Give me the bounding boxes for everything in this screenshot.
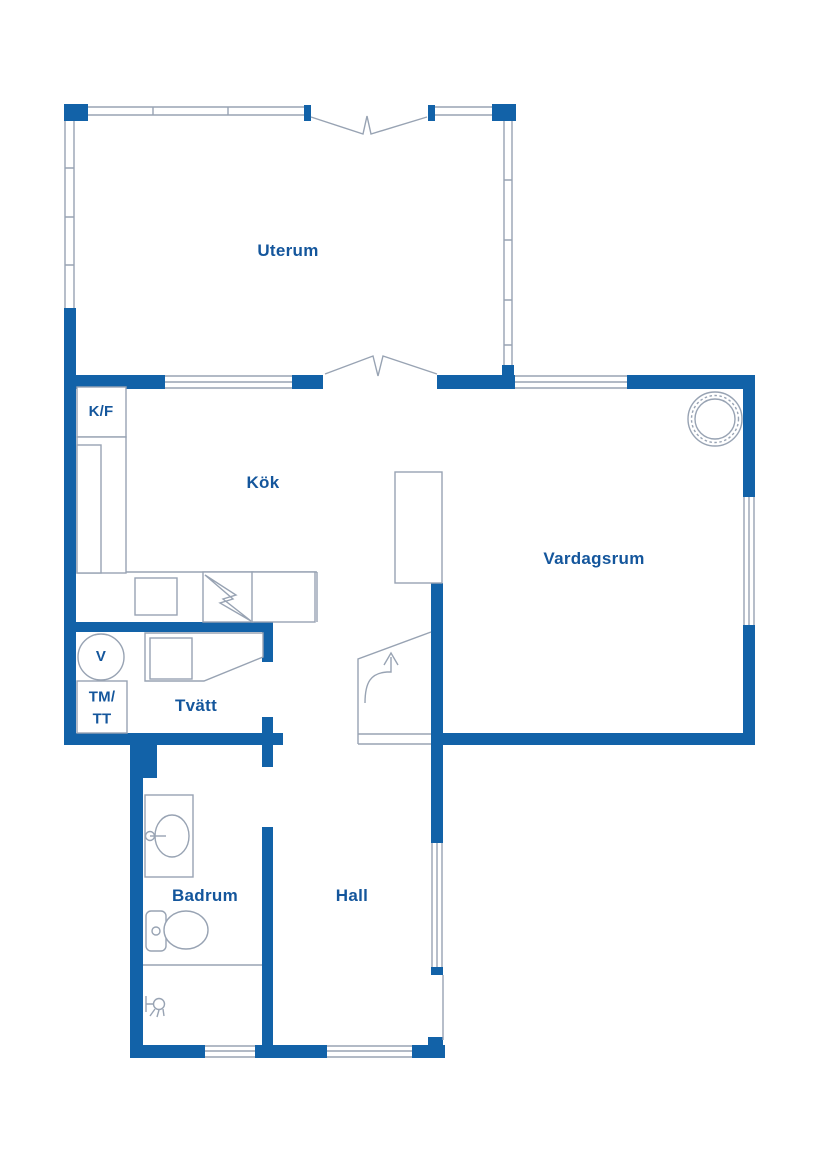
uterum-glass-walls (64, 104, 516, 376)
fireplace-icon (688, 392, 742, 446)
exterior-wall-right (743, 375, 755, 497)
closet-box (395, 472, 442, 583)
exterior-wall-vardagsrum-bottom (431, 733, 755, 745)
interior-wall-tvatt-bottom (64, 733, 283, 745)
bathroom-fixtures (143, 795, 262, 1017)
washer-dryer-line1: TM/ (89, 686, 115, 708)
interior-wall-badrum-hall (262, 827, 273, 1047)
uterum-window-right (504, 121, 512, 365)
uterum-door-jamb (304, 105, 311, 121)
kitchen-fixtures (77, 387, 442, 622)
exterior-wall-bottom (412, 1045, 445, 1058)
room-label-vardagsrum: Vardagsrum (543, 549, 644, 569)
kitchen-counter-left-inner (77, 445, 101, 573)
exterior-wall-left (64, 375, 76, 745)
uterum-corner-post (492, 104, 516, 121)
uterum-window-left (65, 121, 74, 308)
room-label-kok: Kök (246, 473, 279, 493)
interior-wall-stub (143, 745, 157, 778)
uterum-wall-segment (502, 365, 514, 376)
washer-dryer-line2: TT (89, 708, 115, 730)
fixture-label-fridge-freezer: K/F (89, 401, 114, 423)
stair-arrow (365, 657, 391, 703)
room-label-tvatt: Tvätt (175, 696, 217, 716)
shower-icon (146, 996, 165, 1017)
uterum-wall-segment (64, 308, 76, 376)
room-label-hall: Hall (336, 886, 368, 906)
uterum-window-mullions (153, 107, 228, 115)
uterum-door-jamb (428, 105, 435, 121)
washing-machine-box (150, 638, 192, 679)
uterum-top-double-door (311, 116, 427, 134)
exterior-wall-bottom (130, 1045, 205, 1058)
fixture-label-water-heater: V (96, 646, 106, 668)
uterum-bottom-double-door (325, 356, 437, 376)
interior-wall-stub (262, 717, 273, 767)
room-label-badrum: Badrum (172, 886, 238, 906)
exterior-wall-top (292, 375, 323, 389)
exterior-wall-corner-step (428, 1037, 443, 1046)
uterum-window-mullions (504, 180, 512, 345)
uterum-corner-post (64, 104, 88, 121)
exterior-wall-top (627, 375, 755, 389)
interior-wall-mid (431, 583, 443, 843)
toilet-bowl-icon (164, 911, 208, 949)
floor-plan-drawing (0, 0, 825, 1167)
exterior-wall-left-lower (130, 745, 143, 1058)
exterior-wall-right (743, 625, 755, 745)
fixture-label-washer-dryer: TM/ TT (89, 686, 115, 730)
sink-icon (135, 578, 177, 615)
stair (358, 632, 431, 744)
interior-wall-kok-tvatt (64, 622, 273, 632)
uterum-window-mullions (65, 168, 74, 265)
exterior-wall-bottom (255, 1045, 327, 1058)
dishwasher-box (252, 572, 315, 622)
exterior-wall-top (437, 375, 515, 389)
exterior-wall-stub (431, 967, 443, 975)
toilet-tank (146, 911, 166, 951)
floor-plan: Uterum Kök Vardagsrum Tvätt Badrum Hall … (0, 0, 825, 1167)
room-label-uterum: Uterum (257, 241, 318, 261)
stair-outline (358, 632, 431, 744)
